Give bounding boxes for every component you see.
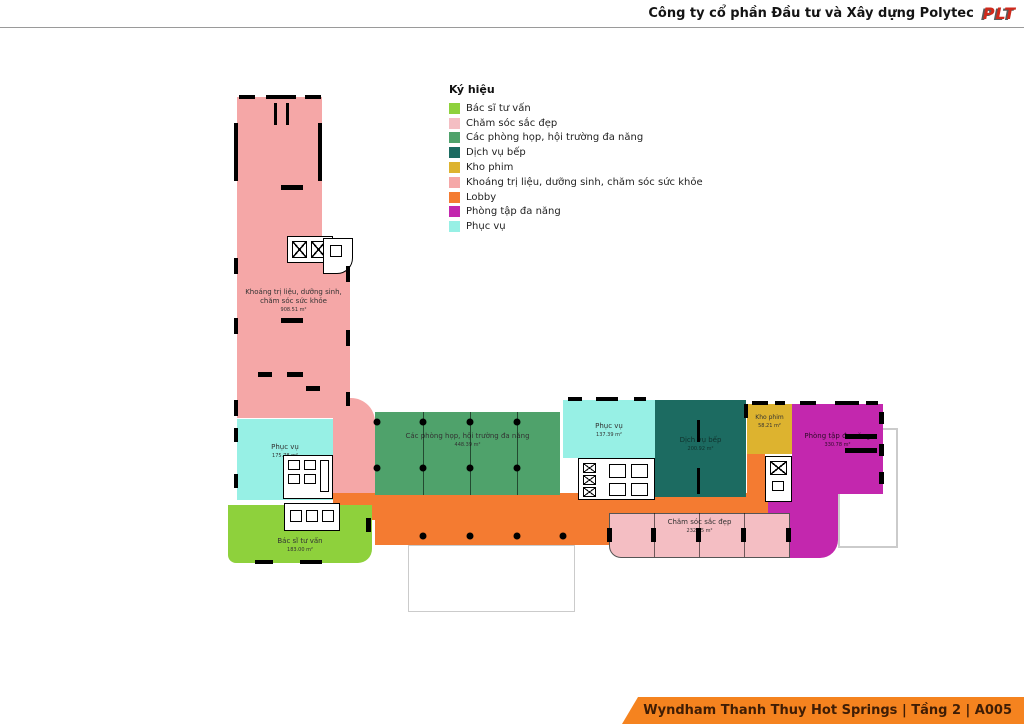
fixture — [609, 483, 626, 496]
wall-tick — [744, 404, 748, 418]
room-label-text: Các phòng họp, hội trường đa năng — [405, 432, 529, 440]
fixture — [304, 460, 316, 470]
wall-tick — [366, 518, 371, 532]
room-kho-phim[interactable]: Kho phim 58.21 m² — [747, 404, 792, 454]
room-label-text: Dịch vụ bếp — [680, 436, 722, 444]
partition-line — [470, 412, 471, 495]
stair-block-right — [765, 456, 792, 502]
swatch-icon — [449, 177, 460, 188]
fixture — [288, 460, 300, 470]
wall-tick — [305, 95, 321, 99]
legend-title: Ký hiệu — [449, 83, 709, 96]
title-block-bar: Wyndham Thanh Thuy Hot Springs | Tầng 2 … — [622, 697, 1024, 724]
legend-item-phong-hop: Các phòng họp, hội trường đa năng — [449, 131, 709, 146]
room-area: 183.00 m² — [228, 547, 372, 554]
wall-tick — [300, 560, 322, 564]
legend: Ký hiệu Bác sĩ tư vấn Chăm sóc sắc đẹp C… — [449, 83, 709, 234]
wall-tick — [634, 397, 646, 401]
fixture — [609, 464, 626, 478]
room-area: 448.39 m² — [395, 442, 540, 449]
wall-tick — [234, 318, 238, 334]
room-label: Kho phim 58.21 m² — [747, 414, 792, 429]
legend-item-lobby: Lobby — [449, 190, 709, 205]
fixture — [290, 510, 302, 522]
swatch-icon — [449, 132, 460, 143]
column-dot — [560, 533, 567, 540]
legend-item-phuc-vu: Phục vụ — [449, 219, 709, 234]
wall-tick — [800, 401, 816, 405]
legend-label: Chăm sóc sắc đẹp — [466, 118, 557, 129]
legend-item-phong-tap: Phòng tập đa năng — [449, 205, 709, 220]
wall-tick — [786, 528, 791, 542]
elevator-icon — [583, 475, 596, 485]
canopy-outline — [408, 545, 575, 612]
wall-tick — [879, 412, 884, 424]
column-dot — [374, 465, 381, 472]
swatch-icon — [449, 162, 460, 173]
legend-item-cham-soc: Chăm sóc sắc đẹp — [449, 116, 709, 131]
wall-tick — [281, 185, 303, 190]
wall-tick — [234, 123, 238, 181]
swatch-icon — [449, 221, 460, 232]
wall-tick — [845, 434, 877, 439]
swatch-icon — [449, 192, 460, 203]
room-label: Dịch vụ bếp 200.92 m² — [655, 436, 746, 453]
room-area: 200.92 m² — [655, 446, 746, 453]
wc-block-left — [283, 455, 333, 499]
room-dich-vu-bep[interactable]: Dịch vụ bếp 200.92 m² — [655, 400, 746, 497]
room-label-text: Bác sĩ tư vấn — [277, 537, 322, 545]
wall-tick — [651, 528, 656, 542]
legend-item-kho-phim: Kho phim — [449, 160, 709, 175]
room-label: Các phòng họp, hội trường đa năng 448.39… — [375, 432, 560, 449]
sheet-title: Wyndham Thanh Thuy Hot Springs | Tầng 2 … — [643, 703, 1012, 718]
wall-tick — [234, 258, 238, 274]
swatch-icon — [449, 118, 460, 129]
wall-tick — [568, 397, 582, 401]
wall-tick — [306, 386, 320, 391]
wall-tick — [835, 401, 859, 405]
wall-tick — [255, 560, 273, 564]
fixture — [288, 474, 300, 484]
wall-tick — [287, 372, 303, 377]
column-dot — [374, 419, 381, 426]
room-label-text: Khoáng trị liệu, dưỡng sinh, chăm sóc sứ… — [245, 288, 342, 305]
room-area: 137.39 m² — [563, 432, 655, 439]
wall-tick — [696, 528, 701, 542]
wall-tick — [775, 401, 785, 405]
wall-tick — [879, 444, 884, 456]
wall-tick — [234, 400, 238, 416]
wall-tick — [266, 95, 296, 99]
wall-tick — [346, 266, 350, 282]
partition-line — [517, 412, 518, 495]
fixture — [306, 510, 318, 522]
fixture — [320, 460, 329, 492]
fixture — [330, 245, 342, 257]
legend-label: Dịch vụ bếp — [466, 147, 526, 158]
wall-tick — [281, 318, 303, 323]
wall-tick — [752, 401, 768, 405]
column-dot — [514, 533, 521, 540]
wall-tick — [234, 428, 238, 442]
wall-tick — [607, 528, 612, 542]
swatch-icon — [449, 103, 460, 114]
elevator-icon — [583, 487, 596, 497]
wall-tick — [234, 474, 238, 488]
fixture — [631, 483, 648, 496]
room-label: Phục vụ 137.39 m² — [563, 422, 655, 439]
room-label: Bác sĩ tư vấn 183.00 m² — [228, 537, 372, 554]
swatch-icon — [449, 206, 460, 217]
wall-tick — [596, 397, 618, 401]
wall-tick — [318, 123, 322, 181]
lift-block-mid — [578, 458, 655, 500]
swatch-icon — [449, 147, 460, 158]
room-lobby-corner[interactable] — [747, 454, 765, 494]
legend-label: Kho phim — [466, 162, 513, 173]
wall-tick — [239, 95, 255, 99]
fixture — [631, 464, 648, 478]
partition-line — [423, 412, 424, 495]
wall-tick — [258, 372, 272, 377]
room-area: 908.51 m² — [245, 307, 342, 314]
elevator-icon — [292, 241, 307, 258]
legend-item-dich-vu-bep: Dịch vụ bếp — [449, 145, 709, 160]
legend-label: Bác sĩ tư vấn — [466, 103, 531, 114]
elevator-icon — [770, 461, 787, 475]
room-area: 58.21 m² — [747, 423, 792, 430]
wc-block-bacsi — [284, 503, 340, 531]
legend-label: Các phòng họp, hội trường đa năng — [466, 132, 643, 143]
legend-item-bac-si: Bác sĩ tư vấn — [449, 101, 709, 116]
wall-tick — [866, 401, 878, 405]
legend-label: Lobby — [466, 192, 496, 203]
room-lobby-ext[interactable] — [375, 520, 610, 545]
wall-tick — [697, 468, 700, 494]
wall-tick — [845, 448, 877, 453]
column-dot — [420, 533, 427, 540]
wall-tick — [741, 528, 746, 542]
wall-tick — [286, 103, 289, 125]
column-dot — [467, 533, 474, 540]
room-label-text: Phục vụ — [271, 443, 299, 451]
fixture — [322, 510, 334, 522]
room-label-text: Kho phim — [755, 414, 783, 421]
fixture — [304, 474, 316, 484]
legend-label: Phục vụ — [466, 221, 506, 232]
room-label: Khoáng trị liệu, dưỡng sinh, chăm sóc sứ… — [237, 288, 350, 314]
legend-label: Khoáng trị liệu, dưỡng sinh, chăm sóc sứ… — [466, 177, 703, 188]
wall-tick — [697, 420, 700, 442]
room-khoang-tri-lieu[interactable]: Khoáng trị liệu, dưỡng sinh, chăm sóc sứ… — [237, 250, 350, 418]
fixture — [772, 481, 784, 491]
legend-item-khoang: Khoáng trị liệu, dưỡng sinh, chăm sóc sứ… — [449, 175, 709, 190]
wall-tick — [274, 103, 277, 125]
wall-tick — [879, 472, 884, 484]
legend-label: Phòng tập đa năng — [466, 206, 561, 217]
room-phuc-vu-giua[interactable]: Phục vụ 137.39 m² — [563, 400, 655, 458]
wall-tick — [346, 392, 350, 406]
room-khoang-strip[interactable] — [333, 398, 375, 498]
wall-tick — [346, 330, 350, 346]
room-label-text: Phục vụ — [595, 422, 623, 430]
elevator-icon — [583, 463, 596, 473]
